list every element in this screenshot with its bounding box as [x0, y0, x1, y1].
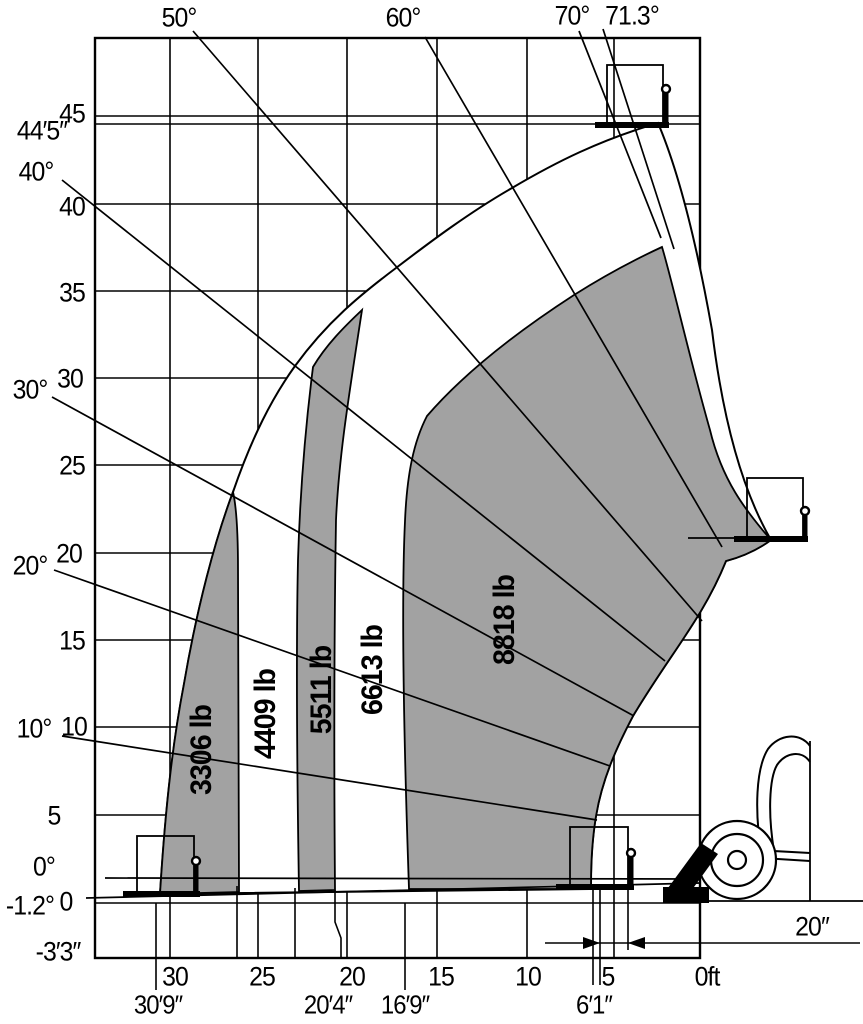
capacity-zone-label: 3306 lb — [185, 705, 219, 795]
x-axis-label: 25 — [249, 962, 275, 993]
y-axis-label: 0° — [33, 852, 55, 883]
x-axis-label: 0ft — [695, 962, 720, 993]
x-axis-label: 20 — [339, 962, 365, 993]
load-chart: 50°60°70°71.3°4544′5″40°403530°302520°20… — [0, 0, 863, 1024]
y-axis-label: 35 — [59, 278, 85, 309]
dimension-label: 20″ — [795, 912, 829, 943]
capacity-zone-label: 8818 lb — [488, 575, 522, 665]
y-axis-label: 40° — [19, 157, 54, 188]
reach-mark-label: 6′1″ — [576, 990, 612, 1021]
x-axis-label: 10 — [515, 962, 541, 993]
y-axis-label: 20 — [56, 539, 82, 570]
x-axis-label: 15 — [428, 962, 454, 993]
reach-mark-label: 20′4″ — [304, 990, 352, 1021]
x-axis-label: 5 — [602, 962, 615, 993]
y-axis-label: 10° — [17, 714, 52, 745]
capacity-zone-label: 6613 lb — [356, 625, 390, 715]
boom-angle-label: 71.3° — [605, 1, 659, 32]
reach-mark-label: 30′9″ — [134, 990, 182, 1021]
chart-labels: 50°60°70°71.3°4544′5″40°403530°302520°20… — [0, 0, 863, 1024]
capacity-zone-label: 4409 lb — [249, 669, 283, 759]
capacity-zone-label: 5511 lb — [305, 646, 339, 734]
y-axis-label: 44′5″ — [17, 116, 67, 147]
y-axis-label: -1.2° — [6, 891, 54, 922]
boom-angle-label: 50° — [162, 3, 197, 34]
y-axis-label: 15 — [59, 626, 85, 657]
y-axis-label: 40 — [59, 192, 85, 223]
y-axis-label: -3′3″ — [36, 937, 81, 968]
x-axis-label: 30 — [162, 962, 188, 993]
y-axis-label: 10 — [61, 712, 87, 743]
y-axis-label: 0 — [60, 887, 73, 918]
y-axis-label: 25 — [59, 451, 85, 482]
y-axis-label: 5 — [48, 801, 61, 832]
y-axis-label: 20° — [13, 551, 48, 582]
y-axis-label: 30° — [13, 375, 48, 406]
boom-angle-label: 70° — [555, 1, 590, 32]
reach-mark-label: 16′9″ — [381, 990, 429, 1021]
y-axis-label: 30 — [57, 364, 83, 395]
boom-angle-label: 60° — [386, 3, 421, 34]
